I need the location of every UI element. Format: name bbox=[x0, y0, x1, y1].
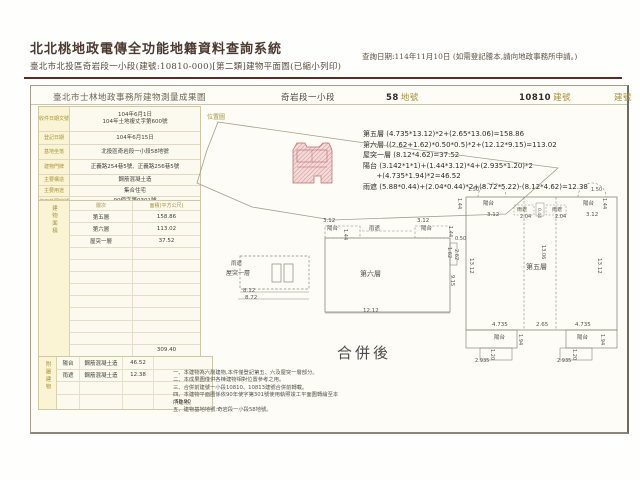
document-subtitle: 臺北市北投區奇岩段一小段(建號:10810-000)[第二類]建物平面圖(已縮小… bbox=[30, 60, 341, 72]
formula-line: 陽台 (3.142*1*1)+(1.44*3.12)*4+(2.935*1.20… bbox=[363, 161, 625, 172]
survey-notes: 一、本建物為六層建物,本件僅登記第五、六及屋突一層部分。二、本成果圖僅供各棟建物… bbox=[173, 370, 343, 414]
floor-name: 屋突一層 bbox=[70, 236, 133, 247]
area-empty-row bbox=[70, 260, 200, 272]
area-empty-row bbox=[70, 248, 200, 260]
building-number: 10810建號 bbox=[519, 91, 571, 103]
building-info-table: 收件日期文號104年6月1日 104年土地複丈字第600號登記日期104年6月1… bbox=[38, 106, 201, 208]
area-empty-row bbox=[70, 333, 200, 345]
annex-side-label: 附屬建物 bbox=[39, 357, 57, 409]
area-empty-row bbox=[70, 284, 200, 296]
annex-row: 陽台鋼筋混凝土造46.52 bbox=[57, 357, 212, 370]
area-header-row: 層次面積(平方公尺) bbox=[70, 201, 200, 211]
area-empty-row bbox=[70, 308, 200, 320]
field-label: 登記日期 bbox=[39, 132, 70, 144]
field-value: 集合住宅 bbox=[70, 186, 200, 196]
field-label: 主要構造 bbox=[39, 175, 70, 185]
info-row: 登記日期104年6月15日 bbox=[39, 132, 200, 145]
site-plan-label: 位置圖 bbox=[207, 112, 225, 121]
area-header: 面積(平方公尺) bbox=[133, 201, 200, 210]
building-label-right: 建號 bbox=[614, 91, 632, 103]
formula-line: +(4.735*1.94)*2=46.52 bbox=[363, 171, 625, 182]
floor-area: 158.86 bbox=[133, 211, 200, 222]
annex-structure: 鋼筋混凝土造 bbox=[80, 370, 123, 382]
field-value: 北投區奇岩段一小段58地號 bbox=[70, 145, 200, 159]
annex-area: 12.38 bbox=[123, 370, 154, 382]
info-row: 主要用途集合住宅 bbox=[39, 186, 200, 197]
info-row: 收件日期文號104年6月1日 104年土地複丈字第600號 bbox=[39, 107, 200, 132]
info-row: 基地坐落北投區奇岩段一小段58地號 bbox=[39, 145, 200, 160]
query-date: 查詢日期:114年11月10日 (如需登記謄本,請向地政事務所申請。) bbox=[362, 51, 577, 62]
field-label: 基地坐落 bbox=[39, 145, 70, 159]
area-empty-row bbox=[70, 272, 200, 284]
area-total: 309.40 bbox=[133, 345, 200, 356]
land-number: 58地號 bbox=[386, 91, 419, 103]
floor-header: 層次 bbox=[70, 201, 133, 210]
floor-name: 第六層 bbox=[70, 223, 133, 234]
area-empty-row bbox=[70, 296, 200, 308]
formula-line: 屋突一層 (8.12*4.62)=37.52 bbox=[363, 150, 625, 161]
field-value: 正義路254巷5號、正義路256巷5號 bbox=[70, 160, 200, 174]
note-line: 二、本成果圖僅供各棟建物相對位置參考之用。 bbox=[173, 377, 343, 384]
floor-area: 37.52 bbox=[133, 236, 200, 247]
annex-structure: 鋼筋混凝土造 bbox=[80, 357, 123, 369]
area-empty-row bbox=[70, 321, 200, 333]
field-value: 鋼筋混凝土造 bbox=[70, 175, 200, 185]
info-row: 主要構造鋼筋混凝土造 bbox=[39, 175, 200, 186]
area-row: 第六層113.02 bbox=[70, 223, 200, 235]
formula-line: 雨遮 (5.88*0.44)+(2.04*0.44)*2+(8.72*5.22)… bbox=[363, 182, 625, 193]
area-row: 屋突一層37.52 bbox=[70, 236, 200, 248]
section-name: 奇岩段一小段 bbox=[281, 91, 335, 103]
header-divider bbox=[24, 77, 622, 79]
survey-document: 臺北市士林地政事務所建物測量成果圖 奇岩段一小段 58地號 10810建號 建號… bbox=[30, 85, 629, 434]
field-label: 主要用途 bbox=[39, 186, 70, 196]
floor-name: 第五層 bbox=[70, 211, 133, 222]
system-title: 北北桃地政電傳全功能地籍資料查詢系統 bbox=[30, 38, 282, 57]
area-row: 第五層158.86 bbox=[70, 211, 200, 223]
page: 北北桃地政電傳全功能地籍資料查詢系統 查詢日期:114年11月10日 (如需登記… bbox=[0, 0, 640, 480]
floor-area-table: 建物面積 層次面積(平方公尺)第五層158.86第六層113.02屋突一層37.… bbox=[38, 200, 201, 358]
field-value: 104年6月1日 104年土地複丈字第600號 bbox=[70, 107, 200, 131]
field-label: 收件日期文號 bbox=[39, 107, 70, 131]
building-number-label: 建號 bbox=[553, 93, 571, 103]
land-number-label: 地號 bbox=[401, 93, 419, 103]
note-line: 四、本建物平面圖係依90年使字第301號使用執照竣工平面圖轉繪至本所建物。 bbox=[173, 392, 343, 407]
annex-area: 46.52 bbox=[123, 357, 154, 369]
annex-name: 陽台 bbox=[57, 357, 80, 369]
document-title-row: 臺北市士林地政事務所建物測量成果圖 奇岩段一小段 58地號 10810建號 建號 bbox=[31, 86, 627, 105]
formula-line: 第六層 ((2.62+1.62)*0.50*0.5)*2+(12.12*9.15… bbox=[363, 140, 625, 151]
field-value: 104年6月15日 bbox=[70, 132, 200, 144]
floor-area: 113.02 bbox=[133, 223, 200, 234]
area-calculation-formulas: 第五層 (4.735*13.12)*2+(2.65*13.06)=158.86第… bbox=[363, 129, 625, 192]
info-row: 建物門牌正義路254巷5號、正義路256巷5號 bbox=[39, 160, 200, 175]
floor-area-side-label: 建物面積 bbox=[39, 201, 70, 357]
note-line: 五、建物基地地號:奇岩段一小段58地號。 bbox=[173, 407, 343, 414]
formula-line: 第五層 (4.735*13.12)*2+(2.65*13.06)=158.86 bbox=[363, 129, 625, 140]
field-label: 建物門牌 bbox=[39, 160, 70, 174]
annex-name: 雨遮 bbox=[57, 370, 80, 382]
form-title: 臺北市士林地政事務所建物測量成果圖 bbox=[53, 91, 206, 103]
merge-after-label: 合併後 bbox=[337, 342, 391, 363]
